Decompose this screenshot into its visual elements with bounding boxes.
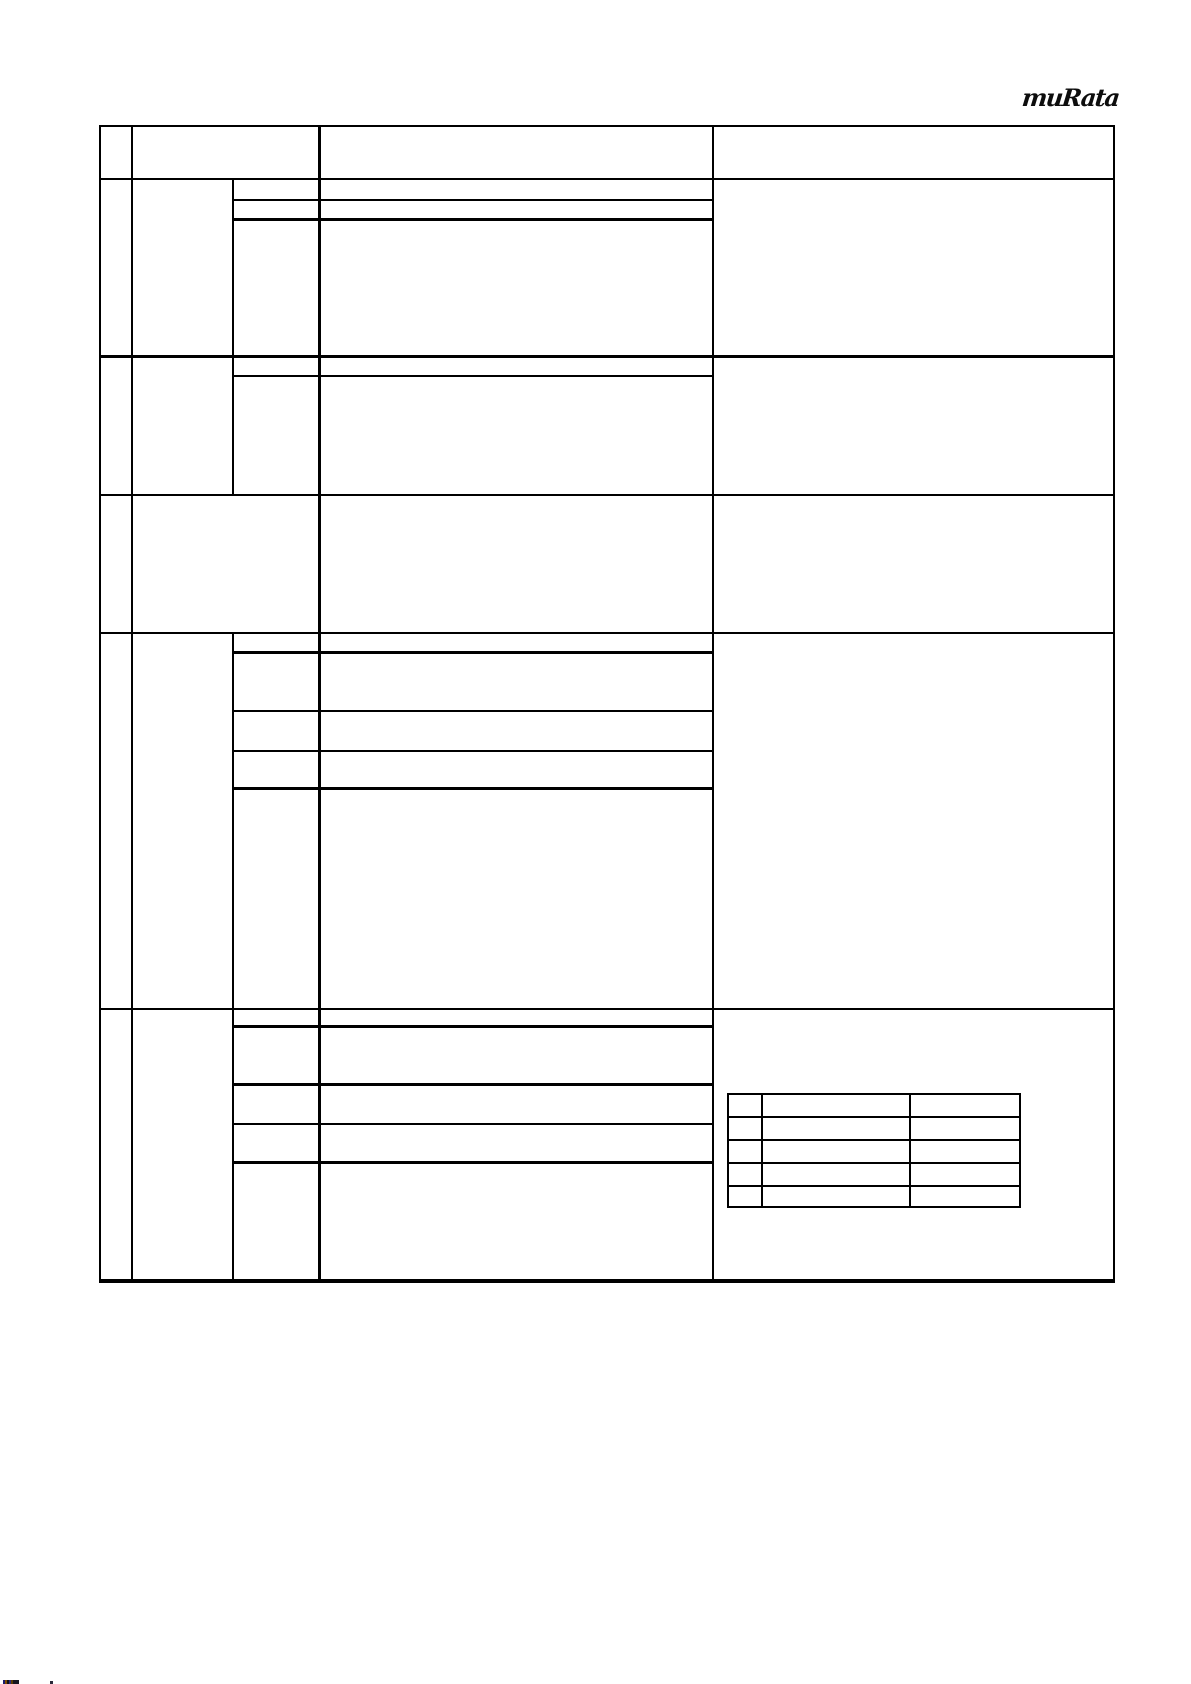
table-hline-top-border [99,125,1115,127]
table-hline-g4-sub1 [232,651,714,654]
datasheet-page: muRata [0,0,1191,1684]
table-hline-g4-sub4 [232,787,714,790]
subtable-hline-r1 [727,1116,1021,1118]
subtable-hline-r4 [727,1185,1021,1187]
subtable-vline-col2 [909,1093,911,1207]
row-group-4 [99,632,1115,1008]
subtable-vline-right [1019,1093,1021,1207]
table-vline-left-border [99,125,101,1283]
subtable-vline-left [727,1093,729,1207]
table-hline-g1-sub1 [232,199,714,201]
notes-subtable [727,1093,1021,1209]
table-hline-g2-end [99,494,1115,496]
row-group-1 [99,178,1115,356]
table-hline-g4-sub2 [232,710,714,712]
page-edge-text-artifact [3,1680,19,1684]
subtable-vline-col1 [761,1093,763,1207]
table-hline-header-bottom [99,178,1115,180]
table-vline-main-divider [318,125,321,1283]
subtable-hline-bottom [727,1206,1021,1208]
table-hline-g1-sub2 [232,218,714,221]
table-hline-bottom-border [99,1279,1115,1283]
table-vline-number-col [131,125,133,1283]
table-hline-g2-sub1 [232,375,714,377]
table-vline-category-upper [232,178,234,494]
table-hline-g5-sub3 [232,1123,714,1125]
subtable-hline-r3 [727,1162,1021,1164]
table-hline-g1-end [99,355,1115,358]
table-hline-g5-sub1 [232,1025,714,1028]
subtable-hline-r2 [727,1139,1021,1141]
table-vline-notes-divider [712,125,714,1283]
murata-logo: muRata [1021,86,1119,112]
table-hline-g4-end [99,1008,1115,1010]
subtable-hline-top [727,1093,1021,1095]
table-vline-right-border [1113,125,1115,1283]
table-hline-g4-sub3 [232,750,714,752]
table-vline-category-lower [232,632,234,1283]
row-group-3 [99,494,1115,632]
table-hline-g3-end [99,632,1115,634]
table-hline-g5-sub4 [232,1161,714,1164]
table-hline-g5-sub2 [232,1083,714,1086]
table-header-row [99,125,1115,178]
